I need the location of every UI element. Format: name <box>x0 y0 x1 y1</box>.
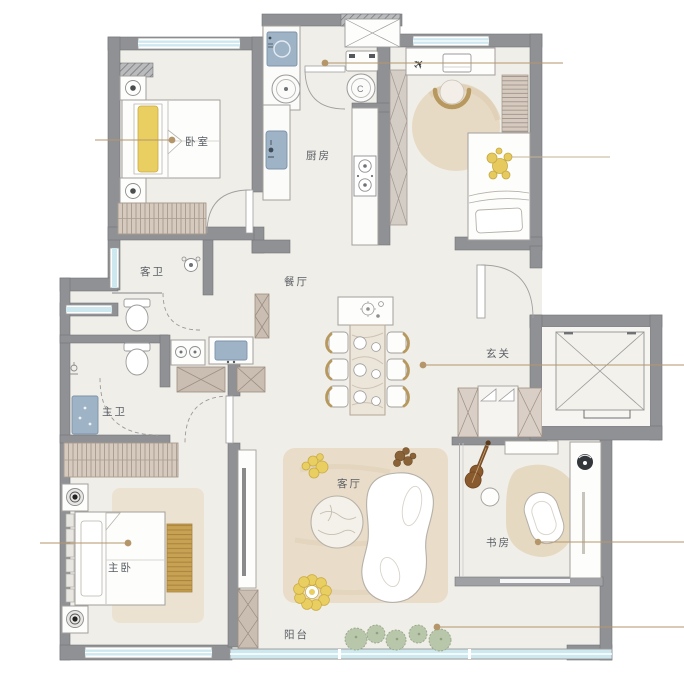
label-study: 书房 <box>486 536 511 549</box>
sofa-icon <box>362 473 434 603</box>
wardrobe-icon <box>118 203 206 234</box>
bench-icon <box>346 51 378 71</box>
label-foyer: 玄关 <box>486 347 511 360</box>
floorplan-svg: C <box>0 0 684 683</box>
balcony-window <box>230 649 612 659</box>
coffee-table-icon <box>311 496 363 548</box>
kitchen-sink-icon <box>266 131 287 169</box>
kids-shelf-icon <box>502 75 528 132</box>
label-bedroom: 卧室 <box>185 135 210 148</box>
stove-icon <box>354 156 376 196</box>
master-bed-icon <box>66 512 165 605</box>
round-washer-icon <box>272 75 300 103</box>
shoe-cabinet-icon <box>458 386 542 437</box>
label-master-bath: 主卫 <box>102 406 127 418</box>
label-master-bedroom: 主卧 <box>108 561 133 574</box>
master-bedroom-window <box>85 647 212 658</box>
dryer-icon: C <box>347 74 375 102</box>
side-window <box>66 305 112 314</box>
storage-cabinet-icon <box>345 19 400 47</box>
master-wardrobe-icon <box>64 443 178 477</box>
shower-icon <box>72 396 98 434</box>
dryer-label: C <box>357 84 364 94</box>
kids-room-window <box>413 36 489 46</box>
washer-icon <box>267 32 297 66</box>
guest-bath-window <box>110 248 119 288</box>
bench-icon <box>167 524 192 592</box>
label-kitchen: 厨房 <box>306 149 331 162</box>
elevator <box>542 327 650 426</box>
hatched-pier <box>120 63 153 77</box>
label-dining: 餐厅 <box>284 275 309 288</box>
double-vanity-icon <box>171 340 205 365</box>
sink-counter-icon <box>209 337 253 364</box>
kids-bed-icon <box>468 133 530 240</box>
label-balcony: 阳台 <box>284 628 309 641</box>
label-living: 客厅 <box>337 477 362 490</box>
label-guest-bath: 客卫 <box>140 265 165 278</box>
desk-icon: ✈ <box>406 48 495 75</box>
kids-wardrobe-icon <box>390 70 407 225</box>
stool-icon <box>481 488 499 506</box>
study-desk-icon <box>570 442 601 578</box>
bedroom-window <box>138 38 240 49</box>
balcony-cabinet-icon <box>238 590 258 648</box>
sideboard-icon <box>338 297 393 325</box>
tv-cabinet-icon <box>238 450 256 588</box>
floorplan-image: C <box>0 0 684 683</box>
